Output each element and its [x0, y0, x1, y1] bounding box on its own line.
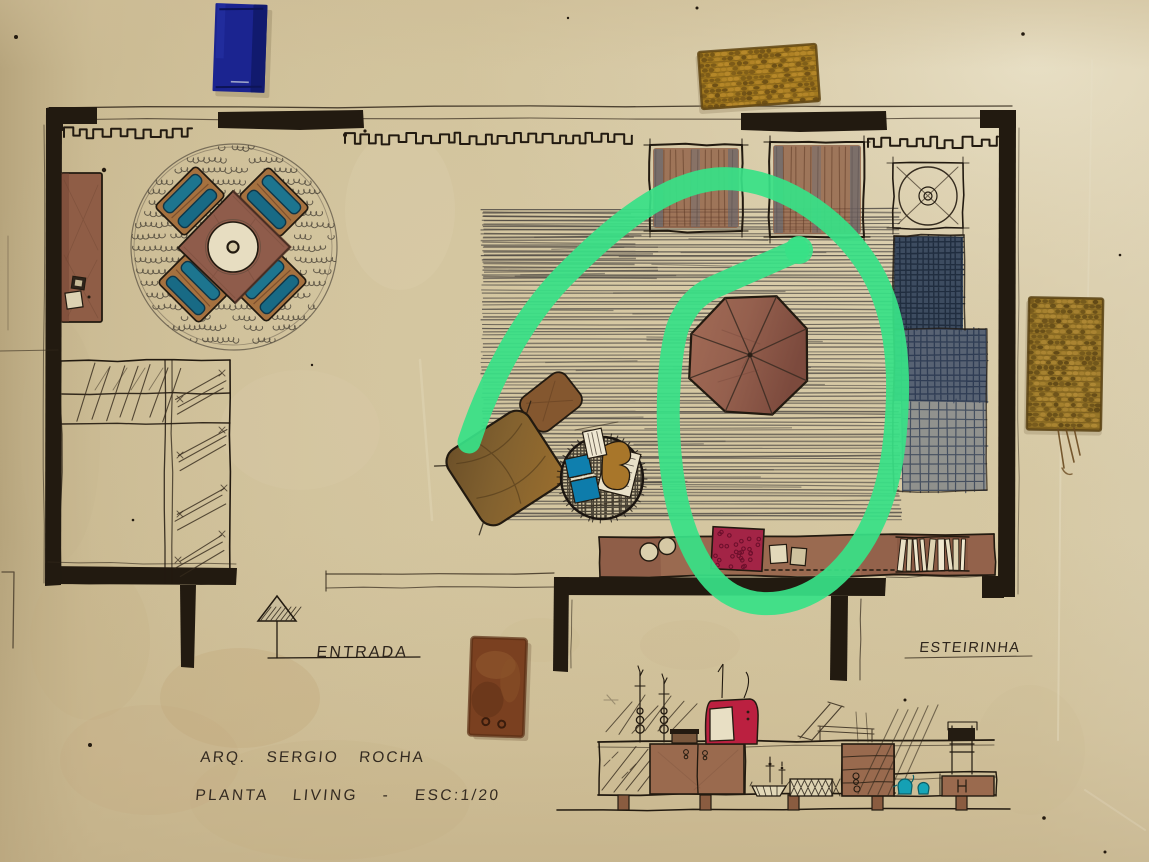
svg-text:ESTEIRINHA: ESTEIRINHA	[919, 640, 1022, 656]
svg-text:ENTRADA: ENTRADA	[316, 643, 410, 661]
svg-text:PLANTA LIVING - ESC:1/20: PLANTA LIVING - ESC:1/20	[195, 787, 501, 804]
svg-text:ARQ. SERGIO ROCHA: ARQ. SERGIO ROCHA	[200, 749, 426, 766]
